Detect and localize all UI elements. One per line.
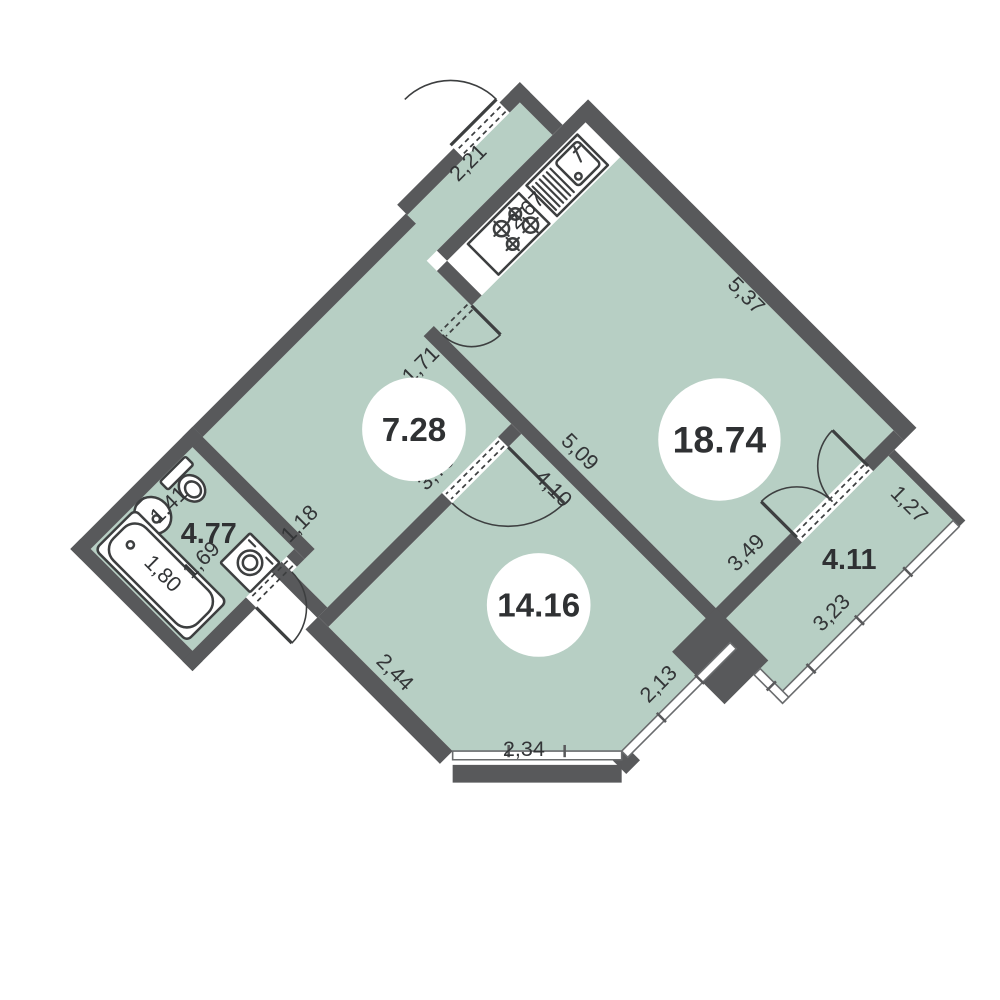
plan-rotated: 2,67 5,37 2,21 1,71 5,09 4,10 3,79 1,18 … <box>13 8 989 984</box>
room-area-text-bathroom: 4.77 <box>181 518 237 550</box>
room-area-bathroom: 4.77 <box>181 518 237 550</box>
room-area-text-bedroom: 14.16 <box>497 587 580 624</box>
room-area-text-living: 18.74 <box>673 418 767 460</box>
room-area-text-balcony: 4.11 <box>822 544 876 576</box>
room-area-living: 18.74 <box>658 378 780 500</box>
floorplan-svg: 2,67 5,37 2,21 1,71 5,09 4,10 3,79 1,18 … <box>0 0 1000 1000</box>
room-area-bedroom: 14.16 <box>487 553 591 657</box>
dim-bedroom-chamfer: 2,34 <box>503 736 545 761</box>
room-area-hall: 7.28 <box>362 377 466 481</box>
room-area-text-hall: 7.28 <box>382 412 446 449</box>
floorplan-canvas: 2,67 5,37 2,21 1,71 5,09 4,10 3,79 1,18 … <box>0 0 1000 1000</box>
room-area-balcony: 4.11 <box>822 544 876 576</box>
